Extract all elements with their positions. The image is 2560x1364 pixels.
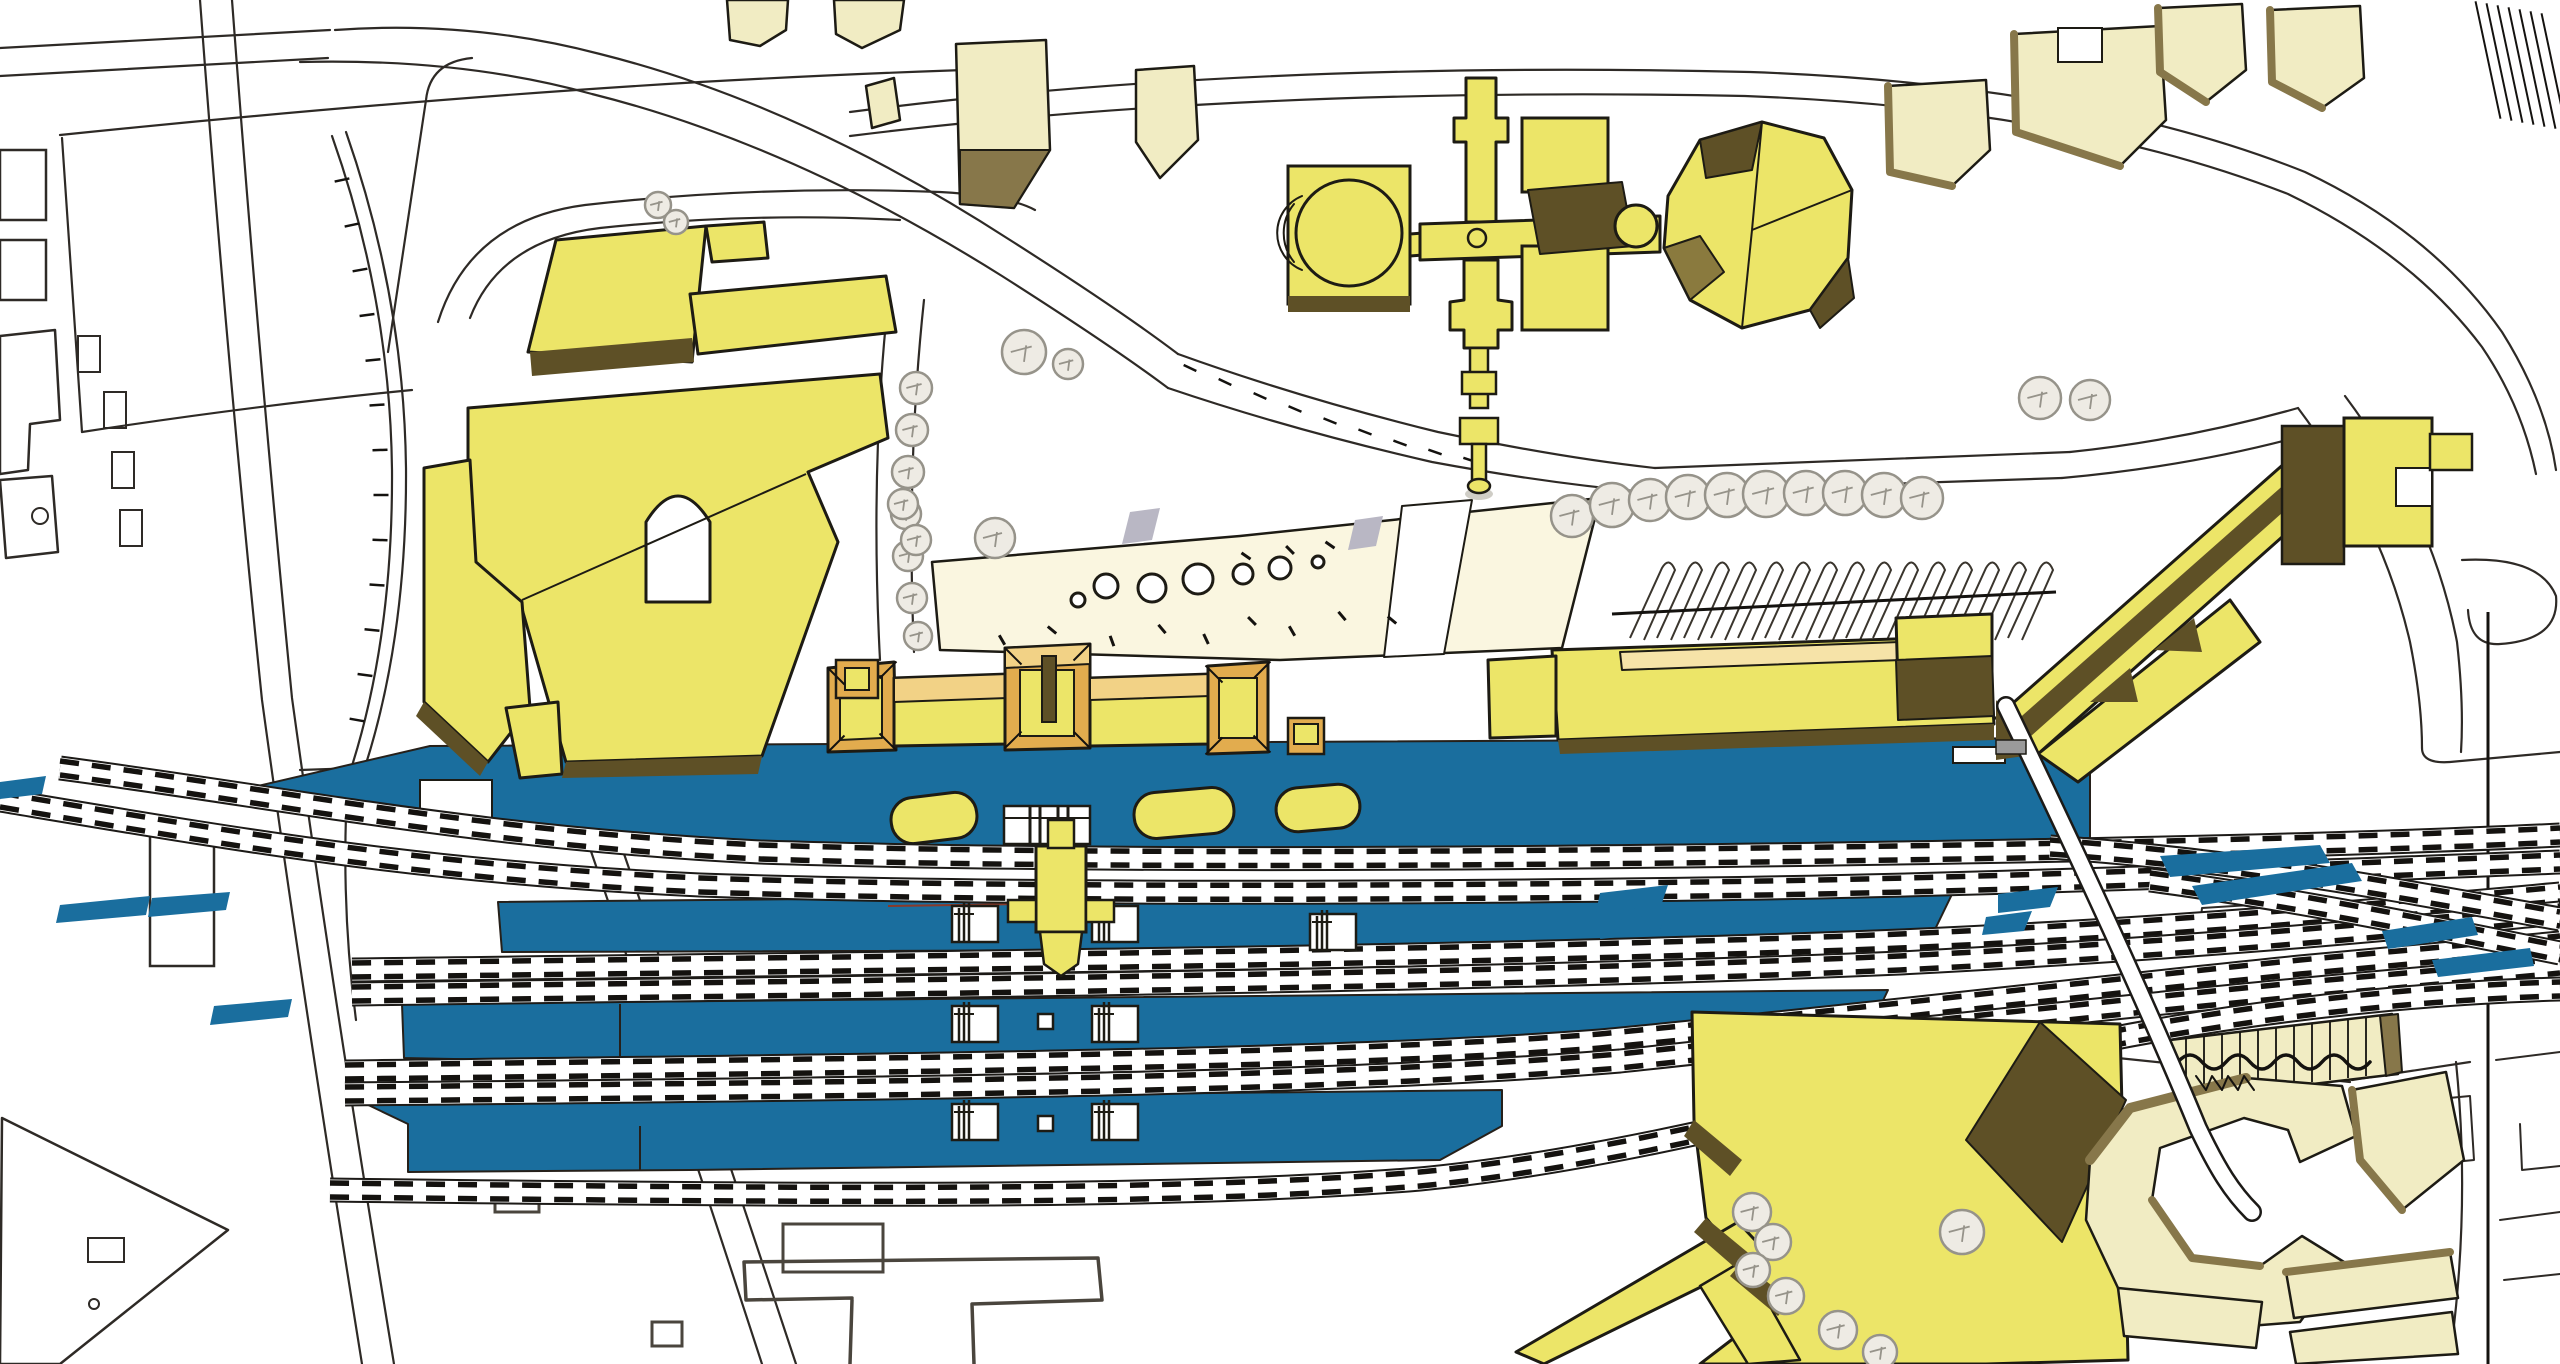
tree-canopy [1768, 1278, 1804, 1314]
outline-detail [32, 508, 48, 524]
tree [896, 414, 928, 446]
residential-bar [2290, 1312, 2458, 1364]
tree-canopy [1784, 471, 1828, 515]
outline-building [0, 240, 46, 300]
outline-detail [652, 1322, 682, 1346]
tree [1862, 473, 1906, 517]
station-plaza [932, 498, 1600, 660]
cross-center-knob [1468, 229, 1486, 247]
street [0, 58, 328, 76]
skylight [1138, 574, 1166, 602]
tree [664, 210, 688, 234]
small-building [1136, 66, 1198, 178]
canopy-opening [1274, 782, 1362, 833]
station-west-tower-inner [845, 668, 869, 690]
rotunda-dark-wedge [1700, 122, 1762, 178]
outline-building [0, 150, 46, 220]
tree [1784, 471, 1828, 515]
platform-tower-arm [1086, 900, 1114, 922]
tree-canopy [1823, 471, 1867, 515]
small-building [866, 78, 900, 128]
tree [1053, 349, 1083, 379]
tree-canopy [1901, 477, 1943, 519]
street [0, 30, 330, 48]
ne-row-building [2158, 4, 2246, 102]
tree [901, 525, 931, 555]
tick [373, 540, 388, 541]
tree-canopy [1743, 471, 1789, 517]
stair-access [952, 1002, 998, 1042]
tree [1629, 479, 1671, 521]
tick [353, 269, 368, 272]
outline-detail [783, 1224, 883, 1272]
dome-building-shadow [1288, 296, 1410, 312]
platform-tower-arm [1008, 900, 1036, 922]
crosswalk [1122, 508, 1160, 544]
tree [1551, 495, 1593, 537]
tick [2531, 11, 2556, 128]
plaza-layer [932, 498, 2056, 660]
t-building-outline [744, 1258, 1102, 1364]
street [388, 58, 472, 352]
sw-avenue [200, 0, 362, 1364]
tick [358, 674, 373, 676]
spine-knob [1460, 418, 1498, 444]
stair-access [1092, 1100, 1138, 1140]
tick [1184, 365, 1197, 371]
street [82, 390, 412, 432]
tree [1666, 475, 1710, 519]
tree [1819, 1311, 1857, 1349]
tree [1736, 1253, 1770, 1287]
skylight [1233, 564, 1253, 584]
tree-canopy [1862, 473, 1906, 517]
tick [1219, 379, 1232, 385]
viaduct-rail [332, 136, 392, 772]
tree-canopy [1666, 475, 1710, 519]
tree-canopy [1940, 1210, 1984, 1254]
station-kiosk-inner [1294, 724, 1318, 744]
tick [1254, 393, 1267, 399]
tree [900, 372, 932, 404]
east-hook-road [2462, 560, 2556, 644]
platform-tower [1036, 846, 1086, 932]
tree [2019, 377, 2061, 419]
cross-box [1522, 118, 1608, 192]
stair-access [952, 902, 998, 942]
footbridge-landing [1996, 740, 2026, 754]
shaft-opening [1038, 1014, 1053, 1029]
tick [2520, 9, 2545, 126]
tree-canopy [1629, 479, 1671, 521]
stair-access [1092, 1002, 1138, 1042]
spine-tip [1468, 479, 1490, 493]
spine-knob [1462, 372, 1496, 394]
spine-rod [1472, 444, 1486, 480]
east-building-annex [1488, 656, 1556, 738]
tree [897, 583, 927, 613]
tree-canopy [1002, 330, 1046, 374]
tree-canopy [1551, 495, 1593, 537]
tree [975, 518, 1015, 558]
ne-road [2062, 436, 2302, 478]
track-wedge [148, 892, 230, 917]
tree-canopy [1819, 1311, 1857, 1349]
tree [892, 456, 924, 488]
tree-canopy [900, 372, 932, 404]
tick [370, 404, 385, 405]
plaza-west-road [876, 302, 888, 660]
cross-spine-mid [1450, 260, 1512, 348]
tick [366, 359, 381, 361]
tree [904, 622, 932, 650]
cross-box [1522, 246, 1608, 330]
tree [2070, 380, 2110, 420]
shaft-opening [1038, 1116, 1053, 1131]
outline-building [78, 336, 100, 372]
left-complex-arch [646, 496, 710, 602]
outline-building [2496, 1052, 2560, 1170]
small-building-side [960, 150, 1050, 208]
east-building-head-dark [1896, 656, 1994, 720]
station-clock-slot [1042, 656, 1056, 722]
track-wedge [56, 896, 150, 923]
tick [373, 450, 388, 451]
tick [1393, 441, 1406, 446]
small-building [834, 0, 904, 48]
stair-access [952, 1100, 998, 1140]
parking-fence [1612, 592, 2056, 614]
site-plan-page [0, 0, 2560, 1364]
station-west-wing-roof [894, 674, 1008, 702]
tick [2487, 3, 2512, 120]
topright-hatch [2476, 1, 2560, 130]
tick [360, 314, 375, 316]
tick [2509, 7, 2534, 124]
tree [1590, 483, 1634, 527]
stair-access [1310, 910, 1356, 950]
tick [370, 584, 385, 585]
tick [1428, 450, 1441, 455]
dome [1296, 180, 1402, 286]
outline-building [0, 476, 58, 558]
platform-tower-stub [1048, 820, 1074, 848]
skylight [1071, 593, 1085, 607]
residential-bar [2352, 1072, 2464, 1210]
canopy-opening [1132, 786, 1236, 841]
avenue-to-plaza [1168, 388, 1645, 492]
site-plan-map [0, 0, 2560, 1364]
tick [365, 629, 380, 631]
skylight [1312, 556, 1324, 568]
skylight [1094, 574, 1118, 598]
ne-complex-core [2282, 426, 2344, 564]
tree-canopy [896, 414, 928, 446]
skylight [1269, 557, 1291, 579]
tree [1940, 1210, 1984, 1254]
ne-complex-notch [2396, 468, 2432, 506]
tree-canopy [975, 518, 1015, 558]
small-building [727, 0, 788, 46]
avenue-to-plaza [1178, 354, 1655, 468]
station-east-wing-roof [1090, 674, 1210, 700]
knob-building [1615, 205, 1657, 247]
tree-canopy [2070, 380, 2110, 420]
tree [1823, 471, 1867, 515]
east-road [2422, 748, 2560, 762]
outline-detail [89, 1299, 99, 1309]
station-east-inner [1219, 678, 1257, 738]
left-complex-upper [690, 276, 896, 354]
tick [1358, 429, 1371, 434]
median-hatch [1184, 365, 1477, 462]
tree-canopy [892, 456, 924, 488]
ne-row-building [1888, 80, 1990, 186]
tick [2476, 1, 2501, 118]
skylight [1183, 564, 1213, 594]
outline-building [2500, 1212, 2560, 1280]
tree [1863, 1335, 1897, 1364]
track-wedge [210, 999, 292, 1025]
outline-building [0, 330, 60, 474]
ne-complex-arm [2430, 434, 2472, 470]
outline-building [112, 452, 134, 488]
outline-triangle [0, 1118, 228, 1364]
tick [1324, 418, 1337, 423]
tick [350, 719, 365, 722]
tree [1768, 1278, 1804, 1314]
ne-row-notch [2058, 28, 2102, 62]
tree [1743, 471, 1789, 517]
east-west-road [1655, 452, 2070, 468]
tick [2498, 5, 2523, 122]
left-complex-upper [706, 222, 768, 262]
tick [345, 223, 360, 226]
street [62, 138, 82, 432]
outline-detail [88, 1238, 124, 1262]
tree-canopy [1736, 1253, 1770, 1287]
tree [1901, 477, 1943, 519]
tick [1289, 406, 1302, 411]
outline-building [120, 510, 142, 546]
tree [1002, 330, 1046, 374]
tree [888, 489, 918, 519]
cross-spine-top [1454, 78, 1508, 222]
tree-canopy [1590, 483, 1634, 527]
tree-canopy [2019, 377, 2061, 419]
outline-building [104, 392, 126, 428]
